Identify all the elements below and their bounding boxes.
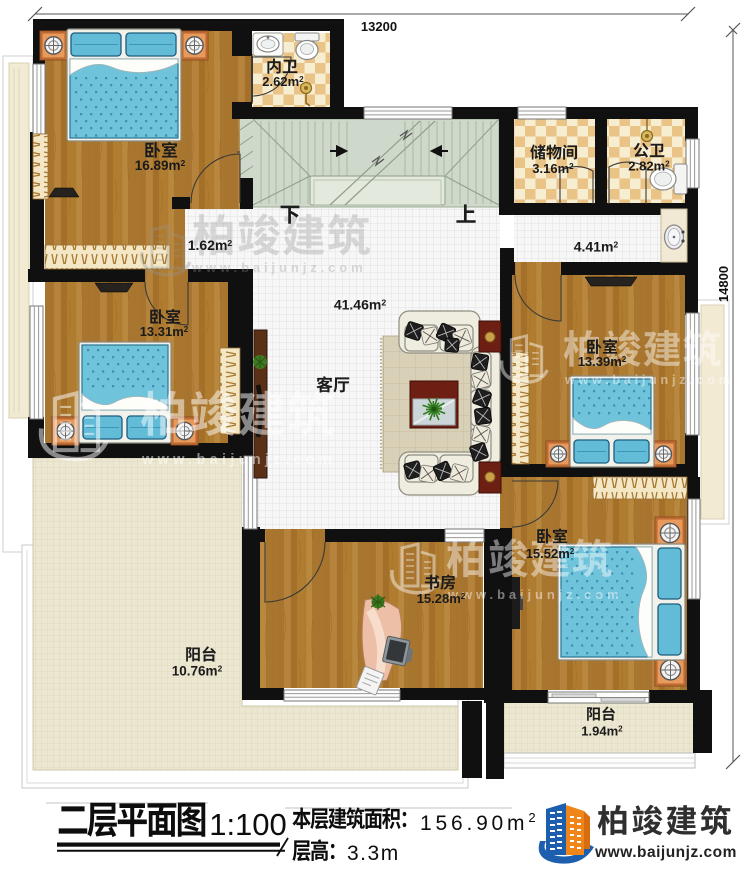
svg-text:10.76m2: 10.76m2 (172, 664, 223, 679)
svg-text:1.94m2: 1.94m2 (581, 724, 623, 739)
svg-text:www.baijunjz.com: www.baijunjz.com (191, 260, 367, 275)
svg-text:www.baijunjz.com: www.baijunjz.com (564, 373, 734, 387)
svg-text:2.82m2: 2.82m2 (628, 159, 670, 174)
svg-text:14800: 14800 (716, 266, 731, 302)
svg-text:13.31m2: 13.31m2 (140, 324, 189, 339)
svg-text:13.39m2: 13.39m2 (578, 354, 627, 369)
svg-text:16.89m2: 16.89m2 (135, 158, 186, 173)
svg-text:13200: 13200 (361, 19, 397, 34)
svg-text:4.41m2: 4.41m2 (574, 239, 619, 255)
svg-text:41.46m2: 41.46m2 (334, 297, 386, 313)
svg-text:15.52m2: 15.52m2 (526, 546, 575, 561)
svg-text:15.28m2: 15.28m2 (417, 591, 466, 606)
svg-text:1:100: 1:100 (209, 807, 287, 842)
svg-text:www.baijunjz.com: www.baijunjz.com (141, 452, 336, 468)
svg-text:156.90m2: 156.90m2 (420, 810, 539, 835)
svg-text:1.62m2: 1.62m2 (188, 237, 233, 253)
svg-text:www.baijunjz.com: www.baijunjz.com (447, 587, 623, 602)
svg-text:3.3m: 3.3m (347, 842, 400, 865)
svg-text:2.62m2: 2.62m2 (262, 74, 304, 89)
svg-text:3.16m2: 3.16m2 (532, 161, 574, 176)
svg-text:www.baijunjz.com: www.baijunjz.com (594, 844, 737, 861)
